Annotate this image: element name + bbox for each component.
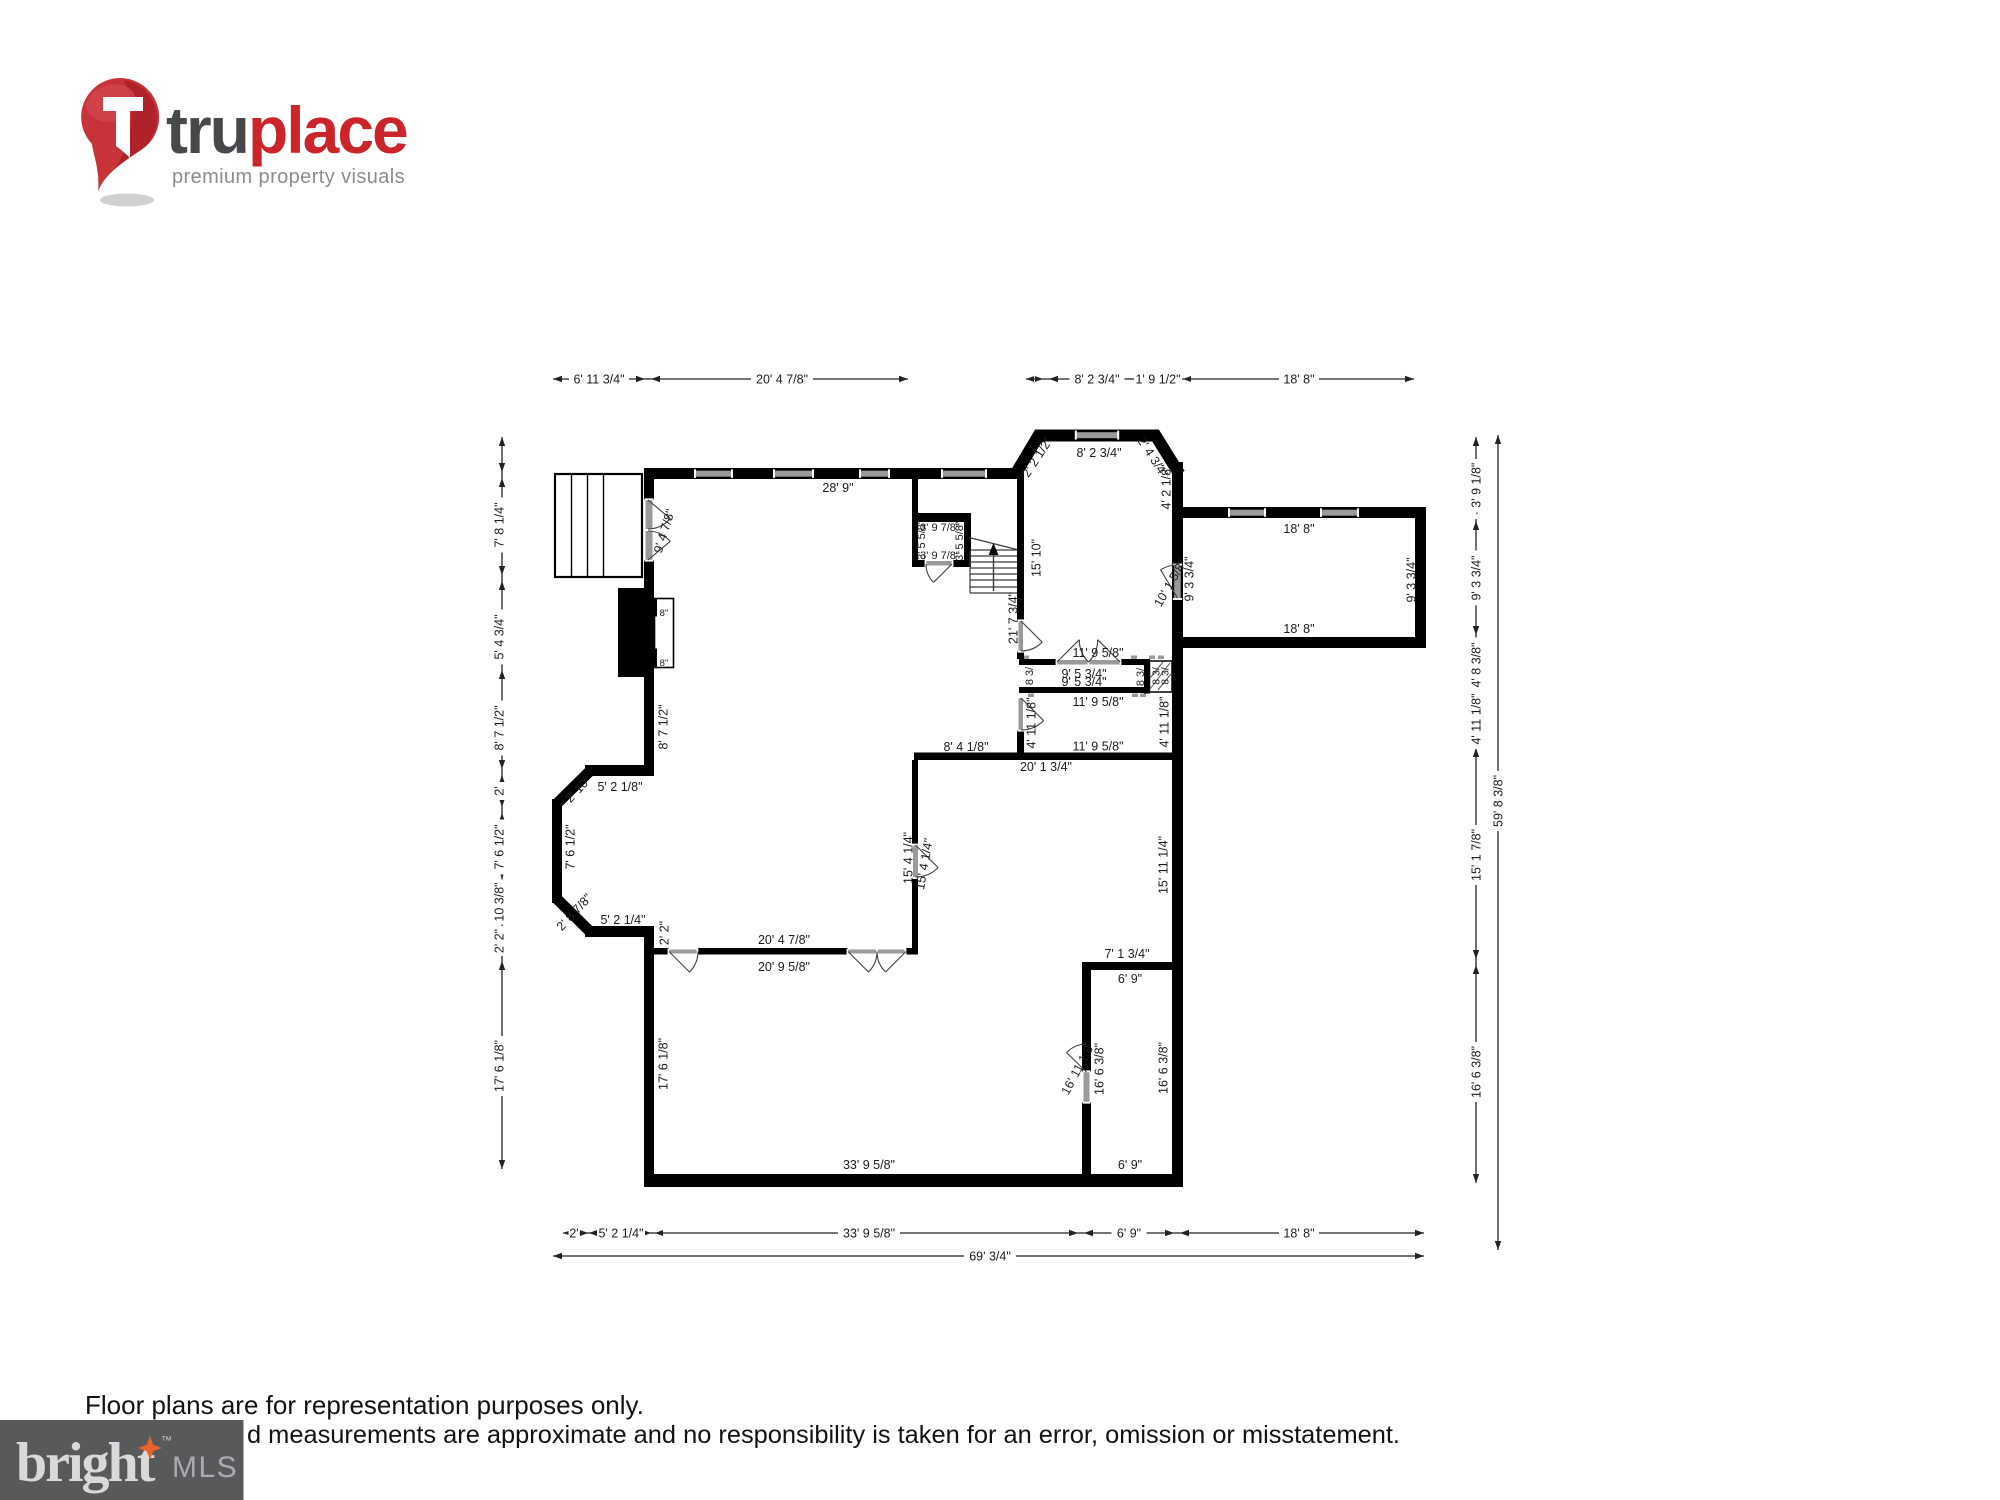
svg-text:8' 7 1/2": 8' 7 1/2" xyxy=(656,704,670,749)
svg-text:MLS: MLS xyxy=(172,1451,238,1484)
svg-text:18' 8": 18' 8" xyxy=(1283,1226,1314,1240)
svg-text:Floor plans are for representa: Floor plans are for representation purpo… xyxy=(85,1390,644,1420)
svg-text:2': 2' xyxy=(492,786,506,795)
svg-text:6' 9": 6' 9" xyxy=(1117,1226,1141,1240)
svg-text:7' 6 1/2": 7' 6 1/2" xyxy=(492,824,506,869)
svg-text:8": 8" xyxy=(660,658,669,669)
svg-text:16' 6 3/8": 16' 6 3/8" xyxy=(1156,1042,1170,1094)
svg-text:truplace: truplace xyxy=(166,93,407,167)
svg-text:5' 2 1/8": 5' 2 1/8" xyxy=(597,780,642,794)
svg-text:premium property visuals: premium property visuals xyxy=(172,166,405,188)
svg-text:· 3' 9 1/8": · 3' 9 1/8" xyxy=(1469,463,1483,516)
svg-text:2': 2' xyxy=(569,1226,578,1240)
svg-text:6' 11 3/4": 6' 11 3/4" xyxy=(573,372,624,386)
svg-text:15' 10": 15' 10" xyxy=(1029,539,1043,577)
svg-text:18' 8": 18' 8" xyxy=(1283,522,1314,536)
svg-text:6' 9": 6' 9" xyxy=(1118,1158,1142,1172)
svg-text:15' 1 7/8": 15' 1 7/8" xyxy=(1469,829,1483,881)
svg-text:18' 8": 18' 8" xyxy=(1283,372,1314,386)
svg-text:69' 3/4": 69' 3/4" xyxy=(969,1249,1011,1263)
svg-text:4' 11 1/8": 4' 11 1/8" xyxy=(1469,693,1483,744)
svg-text:8 3/: 8 3/ xyxy=(1135,667,1147,686)
svg-text:9' 5 3/4": 9' 5 3/4" xyxy=(1061,675,1106,689)
svg-text:d measurements are approximate: d measurements are approximate and no re… xyxy=(247,1421,1400,1449)
svg-text:5' 2 1/4": 5' 2 1/4" xyxy=(600,913,645,927)
svg-text:9' 3 3/4": 9' 3 3/4" xyxy=(1404,557,1418,602)
svg-text:20' 1 3/4": 20' 1 3/4" xyxy=(1020,760,1072,774)
svg-text:20' 9 5/8": 20' 9 5/8" xyxy=(758,960,810,974)
svg-text:8' 2 3/4": 8' 2 3/4" xyxy=(1074,372,1119,386)
svg-text:1' 9 1/2": 1' 9 1/2" xyxy=(1135,372,1180,386)
svg-text:11' 9 5/8": 11' 9 5/8" xyxy=(1072,646,1123,660)
svg-text:15' 4 1/4": 15' 4 1/4" xyxy=(901,832,915,884)
svg-text:™: ™ xyxy=(161,1435,172,1447)
svg-text:8' 4 1/8": 8' 4 1/8" xyxy=(943,740,988,754)
svg-text:17' 6 1/8": 17' 6 1/8" xyxy=(492,1040,506,1092)
svg-text:4' 2 1/8": 4' 2 1/8" xyxy=(1159,464,1173,509)
svg-text:3' 5 5/8": 3' 5 5/8" xyxy=(954,521,966,561)
svg-text:4' 11 1/8": 4' 11 1/8" xyxy=(1024,697,1038,748)
svg-text:8 3/: 8 3/ xyxy=(1160,667,1172,685)
svg-text:8' 2 3/4": 8' 2 3/4" xyxy=(1076,446,1121,460)
svg-text:15' 11 1/4": 15' 11 1/4" xyxy=(1156,836,1170,894)
svg-text:10 3/8": 10 3/8" xyxy=(492,882,506,921)
svg-text:7' 6 1/2": 7' 6 1/2" xyxy=(563,824,577,869)
svg-text:6' 9": 6' 9" xyxy=(1118,972,1142,986)
svg-text:8": 8" xyxy=(660,608,669,619)
svg-text:7' 1 3/4": 7' 1 3/4" xyxy=(1104,947,1149,961)
svg-text:7' 8 1/4": 7' 8 1/4" xyxy=(492,502,506,547)
svg-text:4' 11 1/8": 4' 11 1/8" xyxy=(1157,696,1171,747)
svg-text:2' 2": 2' 2" xyxy=(657,921,671,945)
svg-text:17' 6 1/8": 17' 6 1/8" xyxy=(656,1038,670,1090)
svg-text:16' 6 3/8": 16' 6 3/8" xyxy=(1469,1046,1483,1098)
svg-text:4' 8 3/8": 4' 8 3/8" xyxy=(1469,642,1483,687)
svg-text:11' 9 5/8": 11' 9 5/8" xyxy=(1072,695,1123,709)
svg-text:bright: bright xyxy=(16,1432,156,1494)
svg-text:59' 8 3/8": 59' 8 3/8" xyxy=(1491,775,1505,827)
svg-text:9' 3 3/4": 9' 3 3/4" xyxy=(1469,555,1483,600)
svg-text:5' 4 3/4": 5' 4 3/4" xyxy=(492,614,506,659)
svg-text:16' 6 3/8": 16' 6 3/8" xyxy=(1092,1043,1106,1095)
svg-text:20' 4 7/8": 20' 4 7/8" xyxy=(756,372,808,386)
svg-text:33' 9 5/8": 33' 9 5/8" xyxy=(843,1158,895,1172)
svg-text:8' 7 1/2": 8' 7 1/2" xyxy=(492,705,506,750)
svg-text:8 3/: 8 3/ xyxy=(1024,666,1036,685)
svg-text:11' 9 5/8": 11' 9 5/8" xyxy=(1072,740,1123,754)
svg-text:20' 4 7/8": 20' 4 7/8" xyxy=(758,933,810,947)
svg-text:5' 2 1/4": 5' 2 1/4" xyxy=(598,1226,643,1240)
svg-text:18' 8": 18' 8" xyxy=(1283,622,1314,636)
svg-text:33' 9 5/8": 33' 9 5/8" xyxy=(843,1226,895,1240)
svg-text:21' 7 3/4": 21' 7 3/4" xyxy=(1006,592,1020,644)
svg-text:28' 9": 28' 9" xyxy=(822,481,853,495)
svg-text:2' 2": 2' 2" xyxy=(492,929,506,953)
